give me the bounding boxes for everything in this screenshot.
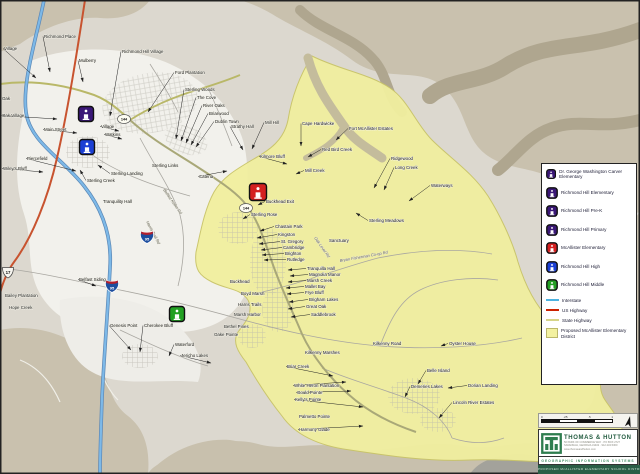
legend-school-label: Richmond Hill Primary xyxy=(561,227,606,233)
map-label: Gould Pointe xyxy=(297,390,323,395)
line-swatch xyxy=(546,309,559,311)
map-label: Frye Bluff xyxy=(305,290,324,295)
legend-line-label: US Highway xyxy=(562,308,587,314)
map-label: Wiley's Bluff xyxy=(3,166,27,171)
map-label: Village xyxy=(4,46,18,51)
legend-school-label: Richmond Hill Elementary xyxy=(561,190,614,196)
school-icon-glyph xyxy=(547,170,556,179)
map-label: Ford Plantation xyxy=(175,70,205,75)
legend-panel: Dr. George Washington Carver ElementaryR… xyxy=(541,163,637,385)
map-label: Kilkenny Marshes xyxy=(305,350,340,355)
scale-bar-segments xyxy=(541,419,613,423)
map-label: Dorian Landing xyxy=(468,383,498,388)
company-tagline: GEOGRAPHIC INFORMATION SYSTEMS xyxy=(538,457,638,465)
legend-school-row-0: Dr. George Washington Carver Elementary xyxy=(546,168,633,180)
legend-school-label: Richmond Hill Middle xyxy=(561,282,604,288)
school-icon xyxy=(546,279,558,291)
map-label: Ridgewood xyxy=(391,156,414,161)
map-label: Waterford xyxy=(175,342,195,347)
legend-school-row-3: Richmond Hill Primary xyxy=(546,224,633,236)
map-label: Kilmore Bluff xyxy=(260,154,286,159)
map-label: Sterling Woods xyxy=(185,87,215,92)
map-label: River Oaks xyxy=(203,103,226,108)
map-label: Tranquility Hall xyxy=(103,199,132,204)
map-label: Harmony Glade xyxy=(299,427,330,432)
legend-line-row-1: US Highway xyxy=(546,308,633,314)
company-website: www.thomasandhutton.com xyxy=(564,448,635,451)
map-label: White Heron Plantation xyxy=(294,383,340,388)
svg-text:144: 144 xyxy=(121,117,128,121)
school-icon-glyph xyxy=(547,187,557,197)
map-label: Mulberry xyxy=(79,58,97,63)
svg-text:144: 144 xyxy=(243,206,250,210)
map-label: Mallet Bay xyxy=(305,284,326,289)
scale-tick-label: .25 xyxy=(563,415,567,419)
map-label: Buckhead xyxy=(230,279,250,284)
footer-title-strip: PROPOSED McALLISTER ELEMENTARY SCHOOL DI… xyxy=(538,465,640,474)
map-label: Mill Creek xyxy=(305,168,325,173)
map-label: Kilkenny Road xyxy=(373,341,402,346)
legend-district-entry: Proposed McAllister Elementary District xyxy=(546,328,633,339)
school-marker-richmond-hill-middle xyxy=(170,307,185,322)
map-label: Marsh Harbor xyxy=(234,312,261,317)
thomas-hutton-logo-icon xyxy=(541,433,562,454)
svg-text:95: 95 xyxy=(110,286,115,291)
legend-line-entries: InterstateUS HighwayState Highway xyxy=(546,298,633,324)
map-label: Fort McAllister Estates xyxy=(349,126,394,131)
map-label: Saddlebrook xyxy=(311,312,336,317)
map-label: The Cove xyxy=(197,95,217,100)
map-label: Rutledge xyxy=(287,257,305,262)
school-icon xyxy=(546,261,558,273)
map-label: Oake Pointe xyxy=(214,332,239,337)
state-highway-shield: 144 xyxy=(240,204,253,213)
map-label: Palmetto Pointe xyxy=(299,414,331,419)
legend-school-row-4: McAllister Elementary xyxy=(546,242,633,254)
map-label: Jericho Lakes xyxy=(181,353,209,358)
scale-tick-label: 0 xyxy=(541,415,543,419)
map-label: Bailey Plantation xyxy=(5,293,38,298)
map-label: Mill Hill xyxy=(265,120,279,125)
scale-segment xyxy=(595,420,613,422)
map-label: Brigham Lakes xyxy=(309,297,339,302)
legend-school-label: McAllister Elementary xyxy=(561,245,605,251)
map-label: Oyster House xyxy=(449,341,476,346)
map-label: Sterling Links xyxy=(152,163,179,168)
map-label: Watkins xyxy=(105,132,121,137)
school-icon-glyph xyxy=(547,243,557,253)
school-icon xyxy=(546,242,558,254)
map-label: Kingston xyxy=(278,232,296,237)
map-label: Harris Trails xyxy=(238,302,262,307)
svg-text:17: 17 xyxy=(6,270,11,275)
company-logo-block: THOMAS & HUTTON 50 PARK OF COMMERCE WAY … xyxy=(538,429,638,457)
scale-segment xyxy=(560,420,578,422)
map-label: Marsh Creek xyxy=(307,278,333,283)
scale-tick-label: .5 xyxy=(588,415,591,419)
map-label: Genesis Point xyxy=(110,323,138,328)
map-label: Kelly's Pointe xyxy=(295,397,322,402)
line-swatch xyxy=(546,319,559,321)
map-label: Hope Creek xyxy=(9,305,33,310)
legend-district-label: Proposed McAllister Elementary District xyxy=(561,328,633,339)
map-label: St. Gregory xyxy=(281,239,304,244)
map-label: Great Oak xyxy=(306,304,327,309)
map-label: Sterling Meadows xyxy=(369,218,405,223)
legend-line-label: State Highway xyxy=(562,318,592,324)
map-label: Sanctuary xyxy=(329,238,350,243)
map-label: Village xyxy=(101,124,115,129)
legend-school-label: Dr. George Washington Carver Elementary xyxy=(559,169,633,180)
legend-line-row-2: State Highway xyxy=(546,318,633,324)
map-label: Magnolia Manor xyxy=(309,272,341,277)
map-label: Piercefield xyxy=(27,156,48,161)
map-label: Richmond Hill Village xyxy=(122,49,164,54)
map-label: Tranquilla Hall xyxy=(307,266,335,271)
legend-school-label: Richmond Hill High xyxy=(561,264,600,270)
school-marker-mcallister-elementary xyxy=(250,184,267,201)
scale-segment xyxy=(577,420,595,422)
map-label: Oak Village xyxy=(2,113,25,118)
legend-school-row-1: Richmond Hill Elementary xyxy=(546,187,633,199)
legend-school-row-5: Richmond Hill High xyxy=(546,261,633,273)
school-marker-town-elementary-campus xyxy=(79,107,94,122)
school-icon xyxy=(546,168,556,180)
school-icon xyxy=(546,205,558,217)
map-label: Sterling Rose xyxy=(251,212,278,217)
svg-text:95: 95 xyxy=(145,237,150,242)
district-swatch xyxy=(546,328,558,338)
map-label: Strathy Hall xyxy=(231,124,254,129)
school-icon-glyph xyxy=(547,206,557,216)
map-label: Belle Island xyxy=(427,368,450,373)
map-label: Boyd Marsh xyxy=(241,291,265,296)
legend-school-entries: Dr. George Washington Carver ElementaryR… xyxy=(546,168,633,291)
map-label: Catena xyxy=(199,174,214,179)
map-label: Waterways xyxy=(431,183,453,188)
map-label: Sterling Landing xyxy=(111,171,143,176)
legend-school-row-6: Richmond Hill Middle xyxy=(546,279,633,291)
school-marker-richmond-hill-high xyxy=(80,140,95,155)
map-label: Brighton xyxy=(285,251,302,256)
map-label: Bethel Pines xyxy=(224,324,249,329)
scale-segment xyxy=(542,420,560,422)
map-label: Lincoln River Estates xyxy=(453,400,495,405)
map-label: Cape Hardwicke xyxy=(302,121,335,126)
map-label: Oak xyxy=(2,96,11,101)
map-label: Red Bird Creek xyxy=(322,147,353,152)
map-label: Sterling Creek xyxy=(87,178,116,183)
map-label: Chastain Park xyxy=(275,224,303,229)
map-label: Main Street xyxy=(44,127,67,132)
map-label: Briar Creek xyxy=(287,364,310,369)
north-arrow-icon xyxy=(624,415,634,428)
richmond-hill-school-district-map: VillageRichmond PlaceMulberryRichmond Hi… xyxy=(0,0,640,474)
school-icon xyxy=(546,224,558,236)
map-label: Cambridge xyxy=(283,245,305,250)
school-icon-glyph xyxy=(547,261,557,271)
legend-school-label: Richmond Hill Pre-K xyxy=(561,208,602,214)
map-label: Cherokee Bluff xyxy=(144,323,174,328)
map-label: Briarwood xyxy=(209,111,229,116)
line-swatch xyxy=(546,299,559,301)
school-icon-glyph xyxy=(547,280,557,290)
legend-school-row-2: Richmond Hill Pre-K xyxy=(546,205,633,217)
scale-bar: 0.25.51 xyxy=(538,413,638,428)
school-icon-glyph xyxy=(547,224,557,234)
map-label: Buckhead Exit xyxy=(266,199,295,204)
map-label: Long Creek xyxy=(395,165,419,170)
map-label: Belfast Siding xyxy=(79,277,106,282)
map-label: Demeries Lakes xyxy=(411,384,444,389)
map-label: Richmond Place xyxy=(44,34,77,39)
scale-tick-label: 1 xyxy=(611,415,613,419)
state-highway-shield: 144 xyxy=(118,115,131,124)
legend-line-label: Interstate xyxy=(562,298,581,304)
legend-line-row-0: Interstate xyxy=(546,298,633,304)
school-icon xyxy=(546,187,558,199)
